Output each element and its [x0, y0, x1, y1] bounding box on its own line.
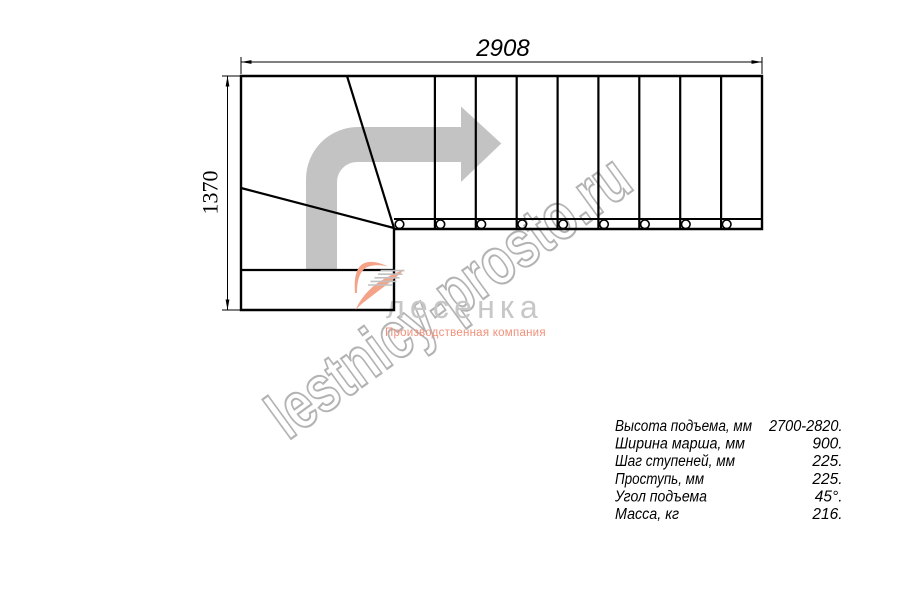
svg-text:2700-2820.: 2700-2820.	[768, 418, 842, 435]
svg-text:2908: 2908	[475, 35, 530, 62]
svg-text:225.: 225.	[811, 453, 842, 470]
svg-text:Масса, кг: Масса, кг	[615, 506, 679, 523]
svg-text:Угол подъема: Угол подъема	[614, 488, 707, 505]
svg-text:Высота подъема, мм: Высота подъема, мм	[615, 418, 752, 435]
svg-text:Шаг ступеней, мм: Шаг ступеней, мм	[615, 453, 735, 470]
svg-text:45°.: 45°.	[815, 488, 843, 505]
svg-text:лесенка: лесенка	[386, 289, 543, 325]
svg-text:Производственная компания: Производственная компания	[385, 327, 546, 339]
svg-text:1370: 1370	[198, 171, 223, 215]
svg-text:Ширина марша, мм: Ширина марша, мм	[615, 436, 745, 453]
svg-text:900.: 900.	[812, 436, 842, 453]
svg-text:216.: 216.	[811, 506, 842, 523]
svg-text:Проступь, мм: Проступь, мм	[615, 471, 704, 488]
svg-text:225.: 225.	[811, 471, 842, 488]
